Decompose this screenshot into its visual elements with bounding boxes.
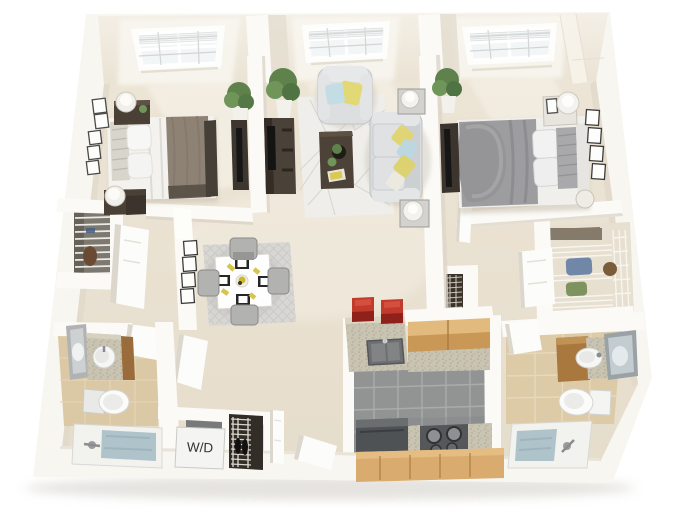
svg-text:W/D: W/D	[187, 440, 214, 456]
